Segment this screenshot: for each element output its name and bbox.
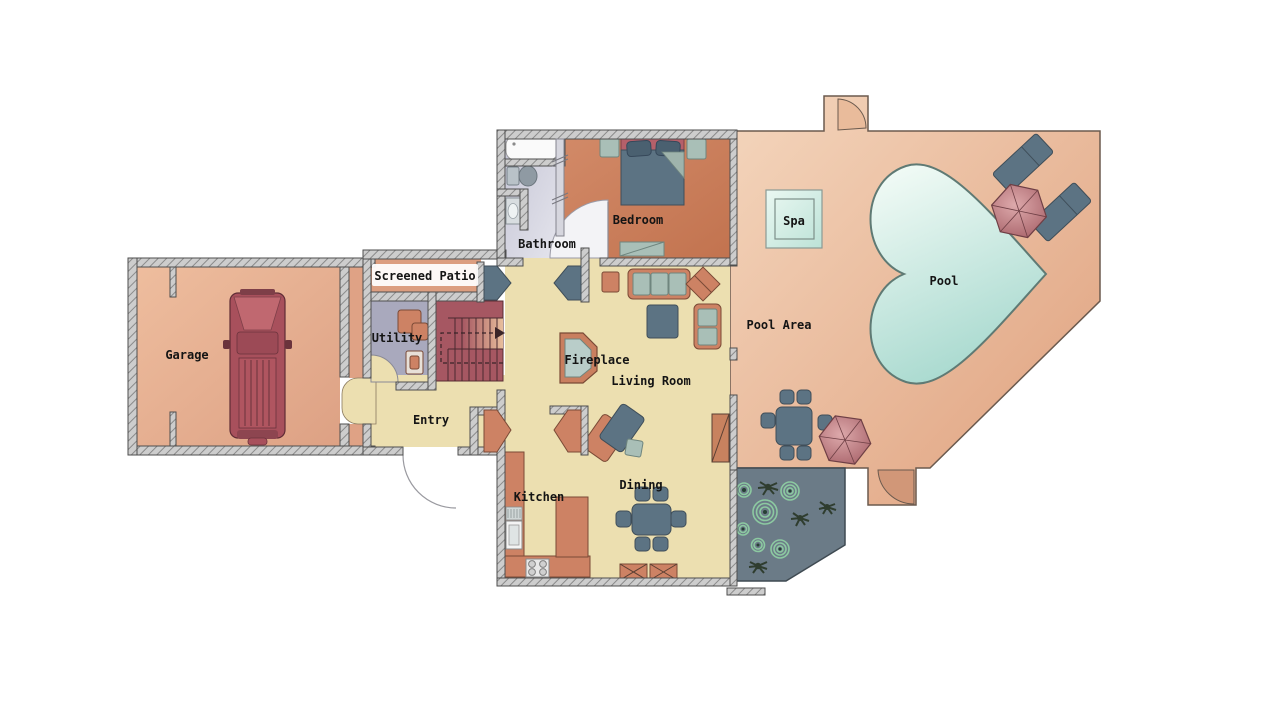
toilet: [507, 166, 537, 186]
garage-hall-floor-lower: [349, 424, 363, 446]
pool-area-label: Pool Area: [746, 318, 811, 332]
kitchen-peninsula: [556, 497, 588, 557]
armchair: [694, 304, 721, 349]
utility-label: Utility: [372, 331, 423, 345]
sofa: [628, 269, 690, 299]
nightstand: [600, 137, 619, 157]
entry-label: Entry: [413, 413, 449, 427]
garden-area: [730, 468, 845, 581]
screened-patio-label: Screened Patio: [374, 269, 475, 283]
garage-label: Garage: [165, 348, 208, 362]
coffee-table: [647, 305, 678, 338]
bathtub-drain: [512, 142, 515, 145]
spa-label: Spa: [783, 214, 805, 228]
bathroom-label: Bathroom: [518, 237, 576, 251]
side-table: [602, 272, 619, 292]
staircase: [428, 301, 505, 381]
dish-rack: [506, 507, 522, 520]
kitchen-label: Kitchen: [514, 490, 565, 504]
bathtub: [506, 136, 558, 160]
bedroom-label: Bedroom: [613, 213, 664, 227]
laundry-basin: [410, 356, 419, 369]
bathroom-sink: [506, 198, 521, 224]
stove: [526, 559, 549, 577]
garage-hall-floor: [349, 267, 363, 378]
living-room-label: Living Room: [611, 374, 690, 388]
car-mirror: [285, 340, 292, 349]
pool-label: Pool: [930, 274, 959, 288]
dining-label: Dining: [619, 478, 662, 492]
car-cab: [237, 332, 278, 354]
bed: [621, 137, 684, 205]
bath-bedroom-divider: [556, 139, 564, 236]
kitchen-sink: [506, 521, 522, 549]
floor-plan-page: Garage Screened Patio Utility Entry Kitc…: [0, 0, 1280, 720]
nightstand: [687, 139, 706, 159]
garage-entry-arch: [342, 378, 376, 424]
car-mirror: [223, 340, 230, 349]
outdoor-table: [776, 407, 812, 445]
car-front-bumper: [240, 289, 275, 295]
front-door-swing: [403, 455, 456, 508]
bedroom-bench: [620, 242, 664, 256]
car: [223, 289, 292, 445]
car-hitch-step: [248, 438, 267, 445]
floor-plan-svg: Garage Screened Patio Utility Entry Kitc…: [0, 0, 1280, 720]
bookcase: [712, 414, 729, 462]
dining-table: [632, 504, 671, 535]
fireplace-label: Fireplace: [564, 353, 629, 367]
